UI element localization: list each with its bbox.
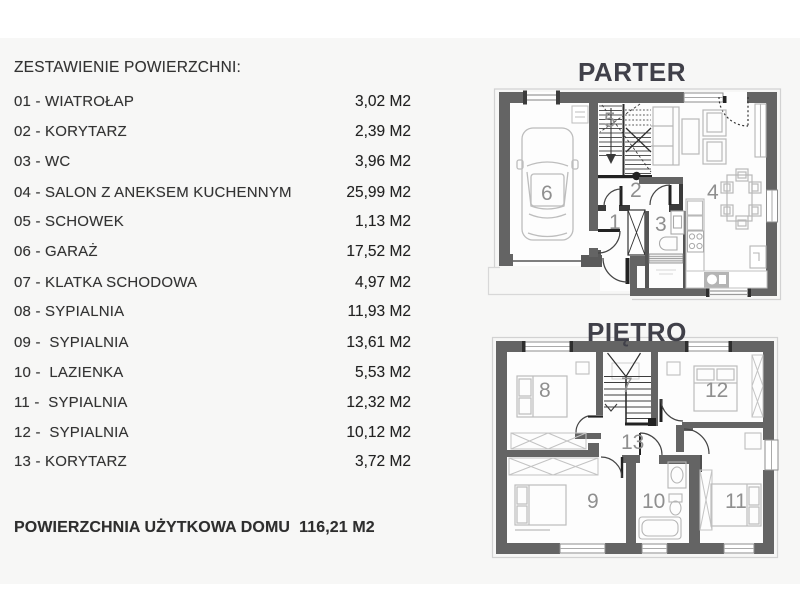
svg-text:11: 11: [725, 490, 747, 513]
svg-text:7: 7: [621, 374, 633, 397]
svg-text:13: 13: [621, 431, 644, 454]
svg-text:8: 8: [539, 379, 551, 402]
svg-text:5: 5: [604, 109, 616, 132]
svg-text:3: 3: [655, 213, 667, 236]
svg-text:10: 10: [642, 490, 665, 513]
svg-text:1: 1: [609, 211, 621, 234]
svg-text:2: 2: [630, 179, 642, 202]
svg-text:12: 12: [705, 379, 728, 402]
svg-text:9: 9: [587, 490, 599, 513]
svg-text:4: 4: [707, 181, 719, 204]
svg-text:6: 6: [541, 182, 553, 205]
